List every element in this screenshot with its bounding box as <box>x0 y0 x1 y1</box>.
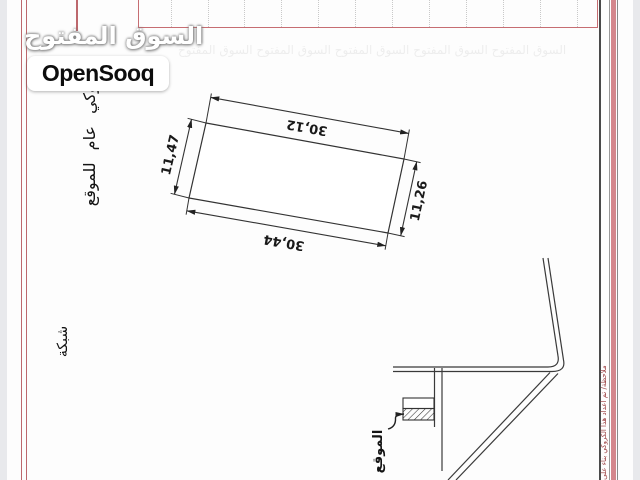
opensooq-arabic-watermark: السوق المفتوح <box>24 22 174 50</box>
road-north-outer <box>393 258 564 372</box>
road-north-inner <box>393 258 558 367</box>
opensooq-logo-text: OpenSooq <box>42 60 154 87</box>
site-leader-arrow <box>388 414 404 429</box>
opensooq-logo-badge: OpenSooq <box>27 56 169 91</box>
site-marker <box>388 398 434 429</box>
roads <box>393 258 564 480</box>
road-diagonal-inner <box>448 373 550 480</box>
dimension-bottom: 30,44 <box>262 231 305 253</box>
ad-image: ك 4 ع ط 3 السوق المفتوح السوق المفتوح ال… <box>0 0 640 480</box>
road-diagonal-outer <box>456 374 558 480</box>
dimension-left: 11,47 <box>159 133 183 176</box>
dimension-top: 30,12 <box>285 116 328 138</box>
